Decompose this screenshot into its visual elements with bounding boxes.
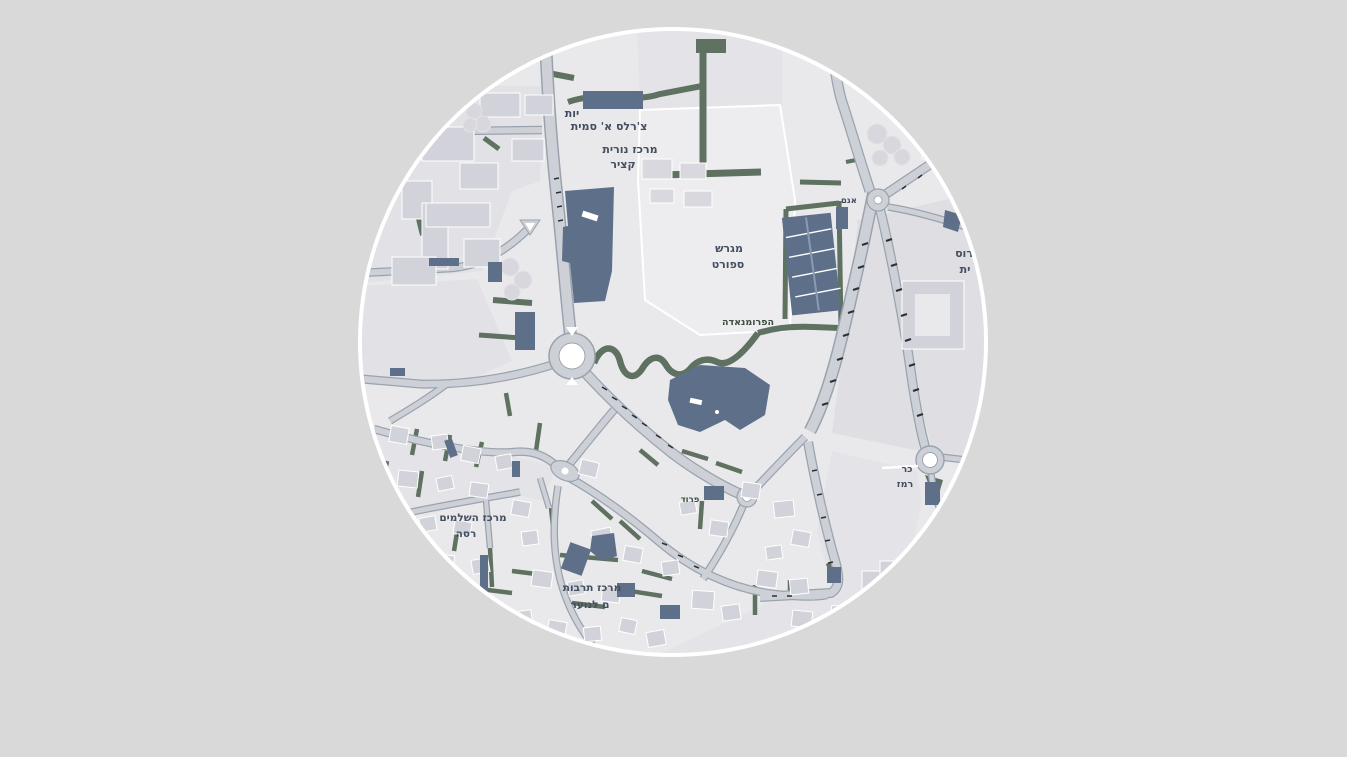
label-garden: פרוד: [681, 495, 700, 505]
label-sports-line2: ספורט: [712, 258, 745, 271]
label-school-name: צ'רלס א' סמית: [571, 120, 648, 133]
label-ramez-line2: רמז: [897, 479, 913, 490]
page-background: { "page": { "background_color": "#d9d9d9…: [0, 0, 1347, 757]
label-shlamim-line2: רסה: [456, 528, 477, 540]
label-culture-line1: מרכז תרבות: [563, 582, 621, 594]
map-viewport[interactable]: יות צ'רלס א' סמית מרכז נורית קציר מגרש ס…: [358, 27, 988, 657]
label-edge-right-line2: ית: [960, 263, 971, 276]
label-nurit-center-line2: קציר: [610, 158, 635, 171]
tennis-courts: [782, 213, 843, 316]
school-building-strip: [583, 91, 643, 109]
sports-field-area: [638, 105, 795, 335]
label-ramez-line1: כר: [901, 464, 912, 475]
label-edge-right-line1: רוס: [955, 247, 973, 260]
urban-blocks-layer: [362, 31, 984, 653]
label-promenade: הפרומנאדה: [722, 317, 774, 328]
label-sports-line1: מגרש: [715, 242, 743, 255]
map-canvas: יות צ'רלס א' סמית מרכז נורית קציר מגרש ס…: [362, 31, 984, 653]
community-center-building: [668, 365, 770, 432]
label-school-fragment: יות: [565, 107, 580, 120]
label-nurit-center-line1: מרכז נורית: [602, 143, 657, 156]
junction-top: [867, 189, 889, 211]
label-culture-line2: ם לנוער: [571, 599, 610, 611]
label-tiny-junction: אנם: [841, 196, 857, 206]
label-shlamim-line1: מרכז השלמים: [439, 512, 506, 524]
